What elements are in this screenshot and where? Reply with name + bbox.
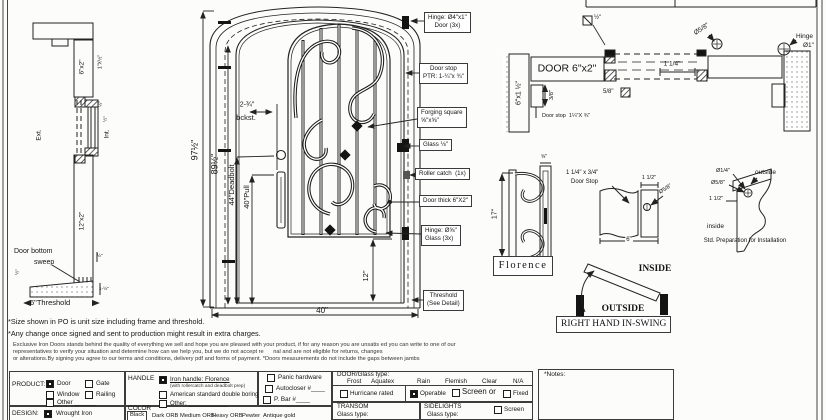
plan-hinge-label-1: Hinge: [796, 34, 813, 41]
sidelights-screen-checkbox[interactable]: [494, 406, 502, 414]
callout-threshold-line2: (See Detail): [427, 300, 460, 307]
hurricane-checkbox[interactable]: [340, 390, 348, 398]
plan-door-stop-label: Door stop 1¼"X ¾": [542, 114, 590, 120]
handle-american-checkbox[interactable]: [159, 391, 167, 399]
product-railing-label: Railing: [96, 392, 115, 399]
dim-deadbolt: 44"Deadbolt: [228, 164, 236, 205]
callout-hinge-glass: Hinge: Ø⅝"Glass (3x): [421, 225, 461, 246]
fine-print-line-3: or alterations.By signing you agree to o…: [13, 356, 420, 362]
callout-door-stop-line2: PTR: 1-¼"x ¾": [423, 73, 464, 80]
callout-hinge-glass-line1: Hinge: Ø⅝": [425, 227, 457, 234]
operable-checkbox[interactable]: [410, 390, 418, 398]
product-window-label: Window: [57, 392, 79, 399]
product-railing-checkbox[interactable]: [85, 391, 93, 399]
dim-door-height: 89½": [210, 154, 219, 175]
product-label: PRODUCT:: [12, 382, 45, 389]
door-bottom-sweep-label-1: Door bottom: [14, 248, 53, 255]
callout-threshold-line1: Threshold: [430, 292, 458, 299]
color-option-dark-orb: Dark ORB: [152, 413, 178, 419]
design-name-plate: Florence: [493, 256, 553, 276]
stop-width-dim: 1 1/2": [642, 176, 656, 182]
prep-caption: Std. Preparation for Installation: [704, 238, 786, 244]
prep-dia-58: Ø5/8": [711, 181, 725, 187]
dim-threshold-height-label: 1-½": [99, 287, 109, 292]
glass-option-na: N/A: [513, 379, 524, 386]
operable-label: Operable: [420, 391, 446, 398]
product-gate-checkbox[interactable]: [85, 380, 93, 388]
design-name-text: Florence: [499, 260, 548, 271]
plan-square-half: ½": [594, 15, 601, 21]
dim-bottom-glass: 12": [362, 270, 370, 281]
autocloser-checkbox[interactable]: [265, 385, 273, 393]
callout-threshold: Threshold(See Detail): [423, 290, 464, 311]
transom-label: TRANSOM: [337, 404, 369, 411]
fixed-label: Fixed: [513, 391, 528, 398]
note-size: *Size shown in PO is unit size including…: [8, 318, 204, 326]
panic-hardware-label: Panic hardware: [278, 375, 322, 382]
scroll-height-dim: 17": [491, 209, 498, 219]
spec-sheet: 6"x2" 1"X½" Ext. Int. ¼" ½" ½" 12"x2" Do…: [0, 0, 826, 420]
threshold-label: 6"Threshold: [30, 299, 70, 307]
callout-hinge-glass-line2: Glass (3x): [425, 235, 453, 242]
dim-backset-1: 2-¾": [240, 101, 255, 108]
glass-option-flemish: Flemish: [445, 379, 467, 386]
glass-cell-divider: [332, 385, 533, 386]
notes-box-label: *Notes:: [544, 372, 565, 379]
sidelights-label: SIDELIGHTS: [424, 404, 461, 411]
fine-print-line-1: Exclusive Iron Doors stands behind the q…: [13, 342, 456, 348]
jamb-bottom-size-label: 12"x2": [80, 212, 87, 231]
callout-hinge-door-line2: Door (3x): [435, 22, 461, 29]
hurricane-label: Hurricane rated: [350, 391, 393, 398]
hurricane-divider: [405, 385, 406, 402]
dim-half-left-label: ½": [15, 269, 20, 275]
product-window-checkbox[interactable]: [46, 391, 54, 399]
callout-door-stop: Door stopPTR: 1-¼"x ¾": [419, 63, 468, 84]
prep-dia-quarter: Ø1/4": [716, 169, 730, 175]
swing-handing-plate: RIGHT HAND IN-SWING: [556, 316, 671, 333]
glass-option-clear: Clear: [482, 379, 497, 386]
plan-dim-114: 1 1/4": [664, 62, 681, 69]
exterior-label: Ext.: [37, 129, 44, 140]
swing-handing-text: RIGHT HAND IN-SWING: [561, 319, 666, 329]
prep-outside-label: outside: [755, 170, 776, 177]
jamb-top-size-label: 6"x2": [80, 59, 87, 74]
fixed-checkbox[interactable]: [503, 390, 511, 398]
design-wrought-checkbox[interactable]: [44, 410, 52, 418]
color-option-medium-orb: Medium ORB: [180, 413, 215, 419]
product-door-checkbox[interactable]: [46, 380, 54, 388]
plan-square-58: 5/8": [603, 89, 613, 95]
dim-total-height: 97½": [190, 140, 199, 161]
pbar-checkbox[interactable]: [263, 396, 271, 404]
screen-or-label: Screen or: [462, 388, 496, 396]
door-stop-detail-drawing: [600, 182, 663, 244]
bar-top-dim: ⅝": [541, 155, 547, 160]
callout-door-stop-line1: Door stop: [430, 65, 457, 72]
interior-label: Int.: [105, 129, 112, 138]
screen-or-checkbox[interactable]: [452, 389, 460, 397]
callout-roller-catch: Roller catch (1x): [415, 168, 470, 180]
callout-forging-line2: ⅝"x⅝": [421, 117, 439, 124]
dim-backset-2: bckst.: [236, 114, 256, 122]
callout-glass-text: Glass ⅛": [423, 141, 448, 148]
dim-sweep-label: ½": [97, 254, 103, 259]
handle-iron-checkbox[interactable]: [159, 376, 167, 384]
color-option-pewter: Pewter: [242, 413, 260, 419]
transom-glass-type-label: Glass type:: [337, 412, 369, 419]
stop-detail-label-1: 1 1/4" x 3/4": [566, 170, 598, 176]
glass-option-aquatex: Aquatex: [371, 379, 394, 386]
sidelights-screen-label: Screen: [504, 407, 524, 414]
handle-american-label: American standard double boring: [170, 392, 258, 398]
handle-other-checkbox[interactable]: [159, 400, 167, 408]
dim-pull: 40"Pull: [243, 185, 251, 209]
note-change: *Any change once signed and sent to prod…: [8, 330, 261, 338]
panic-hardware-checkbox[interactable]: [267, 374, 275, 382]
design-wrought-label: Wrought Iron: [56, 411, 92, 418]
product-other-label: Other ______: [57, 400, 96, 407]
prep-inside-label: inside: [707, 224, 724, 231]
product-gate-label: Gate: [96, 381, 110, 388]
glass-option-frost: Frost: [347, 379, 361, 386]
design-label: DESIGN:: [12, 411, 39, 418]
callout-glass: Glass ⅛": [419, 139, 452, 151]
handle-other-label: Other: ____________: [170, 401, 228, 407]
autocloser-label: Autocloser #____: [276, 386, 325, 393]
stop-detail-label-2: Door Stop: [571, 179, 598, 185]
color-option-antique-gold: Antique gold: [263, 413, 295, 419]
plan-jamb-label: 6"x1 ½": [515, 81, 522, 105]
callout-hinge-door-line1: Hinge: Ø4"x1": [428, 14, 467, 21]
handle-iron-label: Iron handle: Florence: [170, 377, 230, 384]
fine-print-line-2: representatives to verify your situation…: [13, 349, 383, 355]
door-bottom-sweep-label-2: sweep: [34, 259, 54, 266]
plan-dim-38: 3/8": [549, 90, 555, 100]
color-option-black[interactable]: Black: [127, 411, 147, 420]
product-door-label: Door: [57, 381, 71, 388]
dim-width: 40": [316, 307, 328, 315]
handle-label: HANDLE: [128, 376, 154, 383]
prep-dim-112: 1 1/2": [709, 197, 723, 203]
stop-size-label: 1"X½": [98, 55, 103, 69]
callout-forging-square: Forging square⅝"x⅝": [417, 107, 467, 128]
sidelights-glass-type-label: Glass type:: [427, 412, 459, 419]
callout-hinge-door: Hinge: Ø4"x1"Door (3x): [424, 12, 471, 33]
handle-iron-sub-label: (with rollercatch and deadbolt prep): [170, 384, 245, 389]
door-elevation-drawing: [210, 7, 420, 308]
swing-outside-label: OUTSIDE: [602, 305, 645, 315]
swing-inside-label: INSIDE: [639, 265, 672, 275]
callout-roller-text: Roller catch (1x): [419, 170, 466, 177]
plan-door-label: DOOR 6"x2": [538, 63, 597, 74]
dim-half-label: ½": [103, 116, 108, 122]
glass-option-rain: Rain: [417, 379, 430, 386]
product-other-checkbox[interactable]: [46, 399, 54, 407]
plan-hinge-label-2: Ø1": [803, 43, 814, 50]
color-option-heavy-orb: Heavy ORB: [212, 413, 243, 419]
callout-forging-line1: Forging square: [421, 109, 463, 116]
color-black-text: Black: [130, 412, 144, 418]
pbar-label: P. Bar #____: [274, 397, 310, 404]
scroll-detail-drawing: [502, 163, 551, 264]
callout-door-thick-text: Door thick 6"X2": [423, 197, 468, 204]
stop-bottom-dim: 6": [625, 237, 632, 243]
callout-door-thick: Door thick 6"X2": [419, 195, 472, 207]
dim-quarter-label: ¼": [98, 101, 103, 107]
